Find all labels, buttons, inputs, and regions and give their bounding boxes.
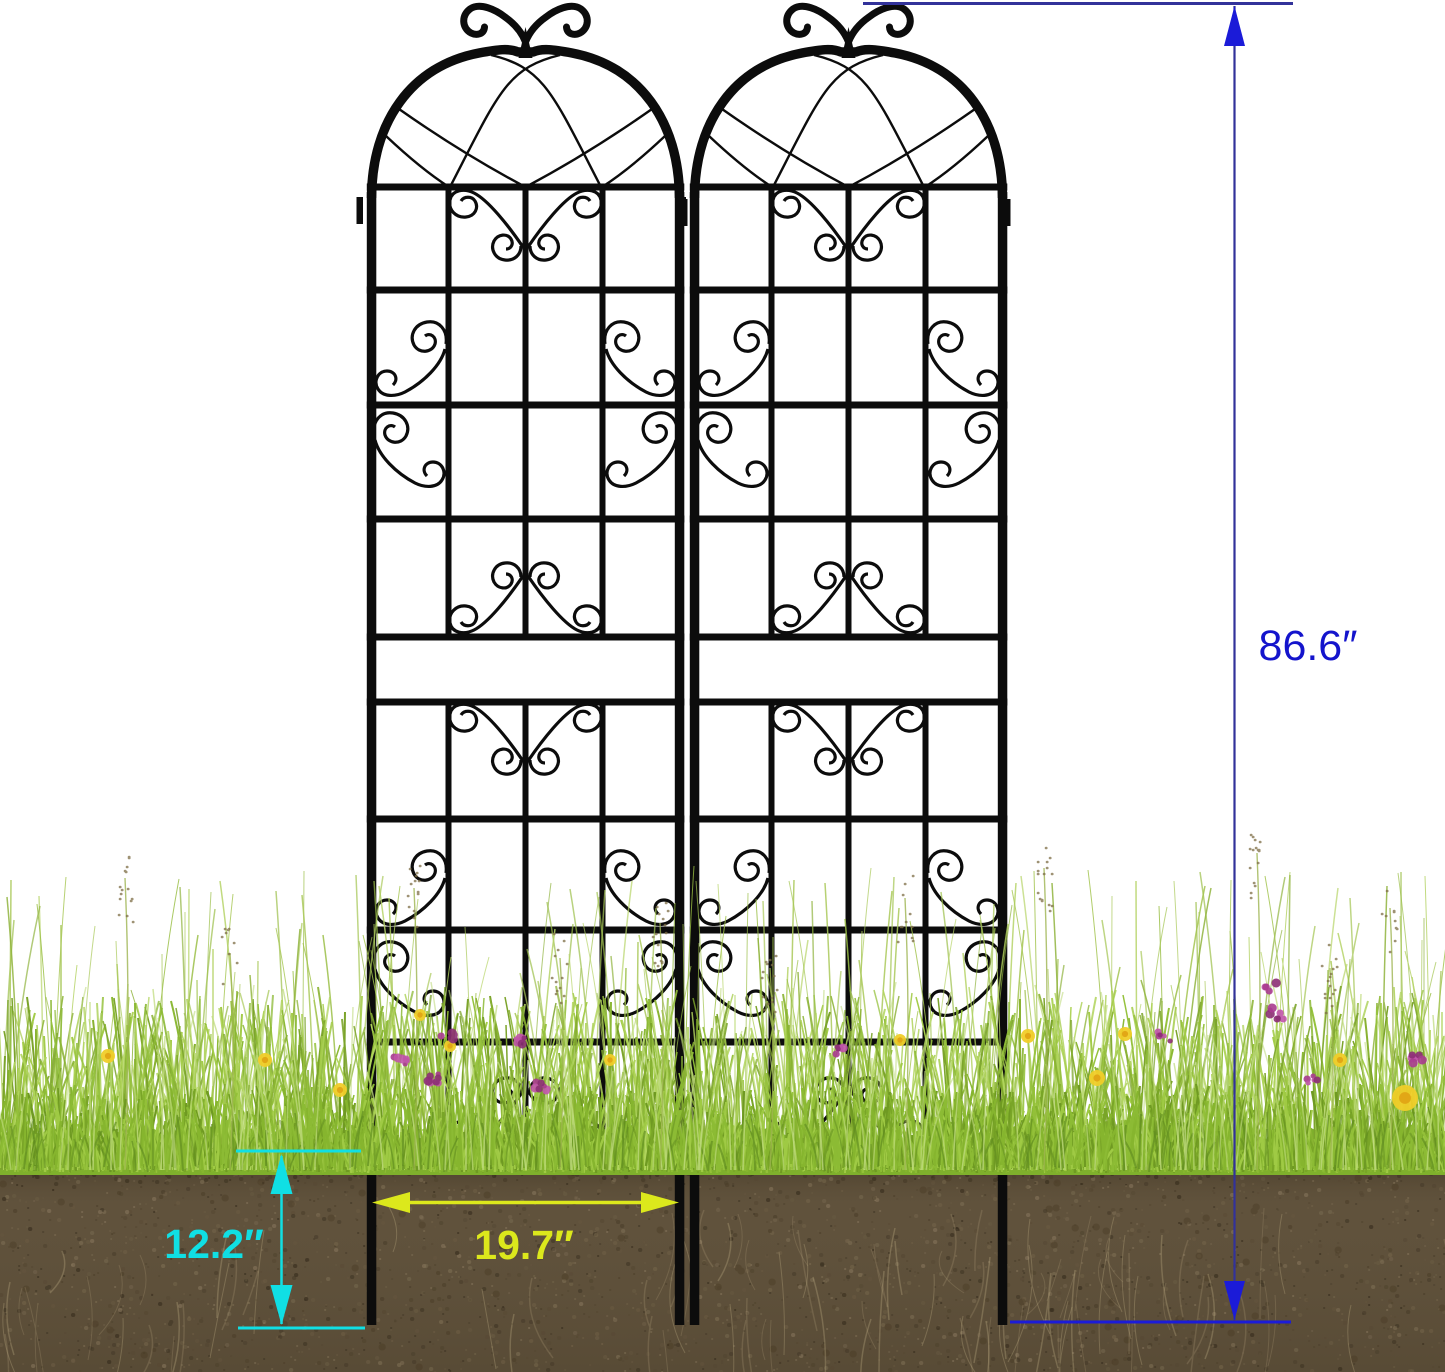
svg-text:12.2″: 12.2″ <box>164 1221 263 1267</box>
svg-text:19.7″: 19.7″ <box>474 1222 573 1268</box>
svg-text:86.6″: 86.6″ <box>1259 622 1358 670</box>
